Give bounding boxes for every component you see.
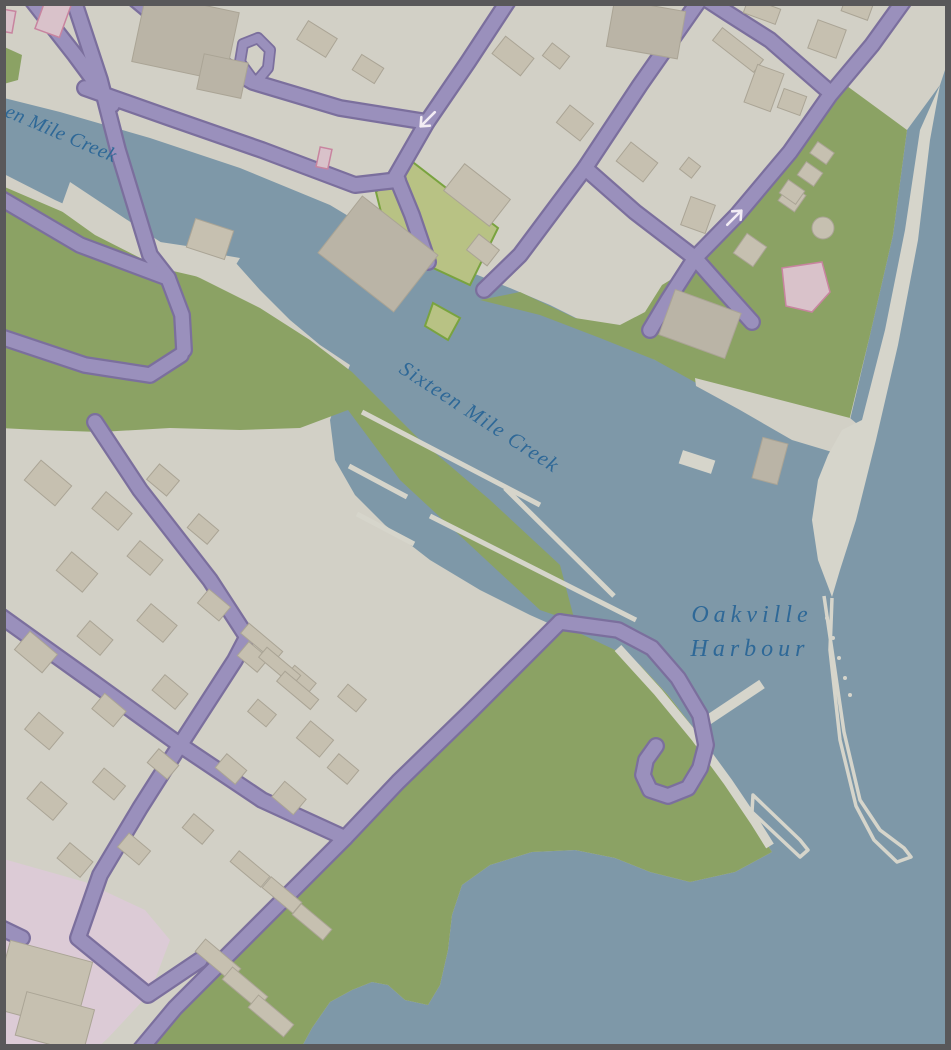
map-viewport[interactable]: en Mile Creek Sixteen Mile Creek Oakvill…	[0, 0, 951, 1050]
park-gazebo	[812, 217, 834, 239]
harbour-label-line2: Harbour	[689, 636, 809, 662]
map-canvas[interactable]: en Mile Creek Sixteen Mile Creek Oakvill…	[0, 0, 951, 1050]
harbour-label-line1: Oakville	[691, 602, 812, 628]
